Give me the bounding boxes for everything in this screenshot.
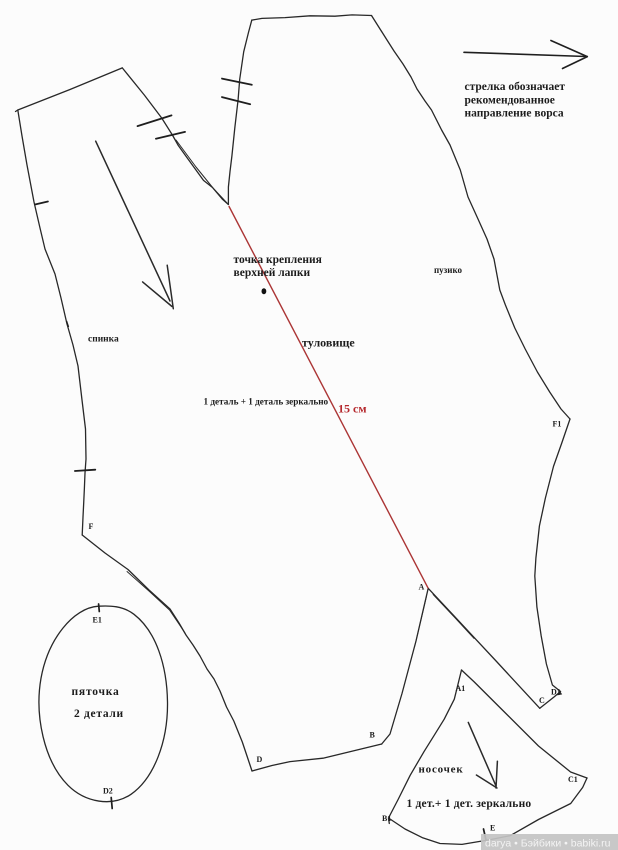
svg-text:15 см: 15 см <box>338 402 367 416</box>
svg-text:туловище: туловище <box>302 336 355 350</box>
svg-text:2 детали: 2 детали <box>74 708 124 720</box>
svg-text:darya • Бэйбики • babiki.ru: darya • Бэйбики • babiki.ru <box>485 837 611 849</box>
svg-text:Е: Е <box>490 824 495 833</box>
svg-text:1 дет.+ 1 дет. зеркально: 1 дет.+ 1 дет. зеркально <box>407 798 532 810</box>
svg-text:стрелка обозначает: стрелка обозначает <box>465 81 566 93</box>
svg-text:рекомендованное: рекомендованное <box>465 94 555 106</box>
svg-text:B: B <box>370 731 376 740</box>
svg-text:пяточка: пяточка <box>72 686 120 698</box>
svg-text:направление ворса: направление ворса <box>465 108 564 120</box>
svg-text:F1: F1 <box>553 419 562 428</box>
svg-text:носочек: носочек <box>419 764 464 776</box>
svg-text:F: F <box>89 522 94 531</box>
svg-text:A: A <box>419 582 425 591</box>
svg-text:C: C <box>539 696 545 705</box>
svg-text:B1: B1 <box>382 814 391 823</box>
svg-text:спинка: спинка <box>88 335 119 345</box>
svg-text:верхней лапки: верхней лапки <box>234 267 311 279</box>
svg-text:D: D <box>257 755 263 764</box>
svg-text:Е1: Е1 <box>93 616 102 625</box>
svg-text:1 деталь + 1 деталь зеркально: 1 деталь + 1 деталь зеркально <box>204 397 329 407</box>
svg-text:D2: D2 <box>103 787 113 796</box>
svg-text:C1: C1 <box>568 775 578 784</box>
svg-text:D1: D1 <box>551 688 561 697</box>
svg-text:пузико: пузико <box>434 265 463 275</box>
svg-text:A1: A1 <box>456 684 466 693</box>
svg-text:точка крепления: точка крепления <box>234 254 322 266</box>
